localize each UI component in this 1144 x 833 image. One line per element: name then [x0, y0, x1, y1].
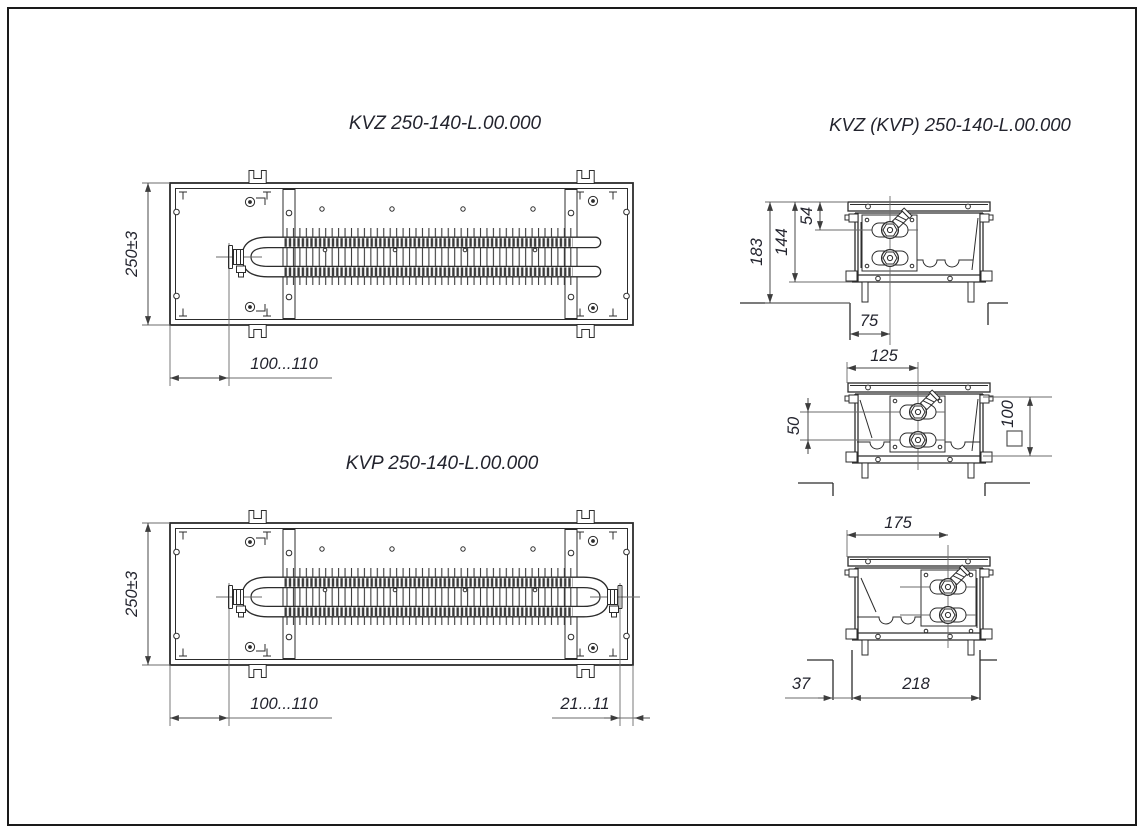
- section-view-bottom: 175 37 218: [785, 514, 997, 700]
- pipe-fitting: [872, 250, 908, 267]
- drawing-sheet: KVZ 250-140-L.00.000 250±3 100...110 KVP…: [0, 0, 1144, 833]
- kvp-dim-height: 250±3: [123, 523, 170, 665]
- dim-218-label: 218: [901, 675, 930, 693]
- dim-50-label: 50: [785, 416, 803, 435]
- kvz-dim-valve-offset-label: 100...110: [250, 355, 318, 373]
- sections-title: KVZ (KVP) 250-140-L.00.000: [829, 114, 1071, 135]
- kvp-dim-right-offset: 21...11: [552, 665, 650, 726]
- kvz-plan-view: KVZ 250-140-L.00.000 250±3 100...110: [123, 113, 633, 386]
- dim-75-label: 75: [860, 312, 879, 330]
- section-views: KVZ (KVP) 250-140-L.00.000: [740, 114, 1072, 700]
- dim-54-label: 54: [798, 207, 816, 225]
- dim-100-label: 100: [999, 399, 1017, 427]
- pipe-fitting: [930, 607, 966, 624]
- technical-drawing: KVZ 250-140-L.00.000 250±3 100...110 KVP…: [0, 0, 1144, 833]
- kvp-plan-title: KVP 250-140-L.00.000: [346, 453, 539, 474]
- kvp-plan-view: KVP 250-140-L.00.000 250±3 100...110 21.…: [123, 453, 650, 726]
- section-view-top: 54 144 183 75: [740, 196, 1008, 345]
- dim-37-label: 37: [792, 675, 811, 693]
- square-symbol: [1007, 431, 1022, 446]
- dim-125-label: 125: [870, 347, 898, 365]
- dim-183-label: 183: [748, 237, 766, 265]
- kvp-dim-height-label: 250±3: [123, 570, 141, 618]
- kvp-dim-right-offset-label: 21...11: [559, 695, 609, 713]
- kvp-casing: [170, 511, 633, 682]
- dim-144-label: 144: [773, 228, 791, 256]
- section-view-middle: 125 50 100: [785, 347, 1052, 496]
- kvz-dim-height: 250±3: [123, 183, 170, 325]
- kvz-casing: [170, 171, 633, 342]
- dim-175-label: 175: [884, 514, 912, 532]
- kvz-dim-height-label: 250±3: [123, 230, 141, 278]
- kvp-dim-valve-offset-label: 100...110: [250, 695, 318, 713]
- kvz-plan-title: KVZ 250-140-L.00.000: [349, 113, 542, 134]
- pipe-fitting: [900, 432, 936, 449]
